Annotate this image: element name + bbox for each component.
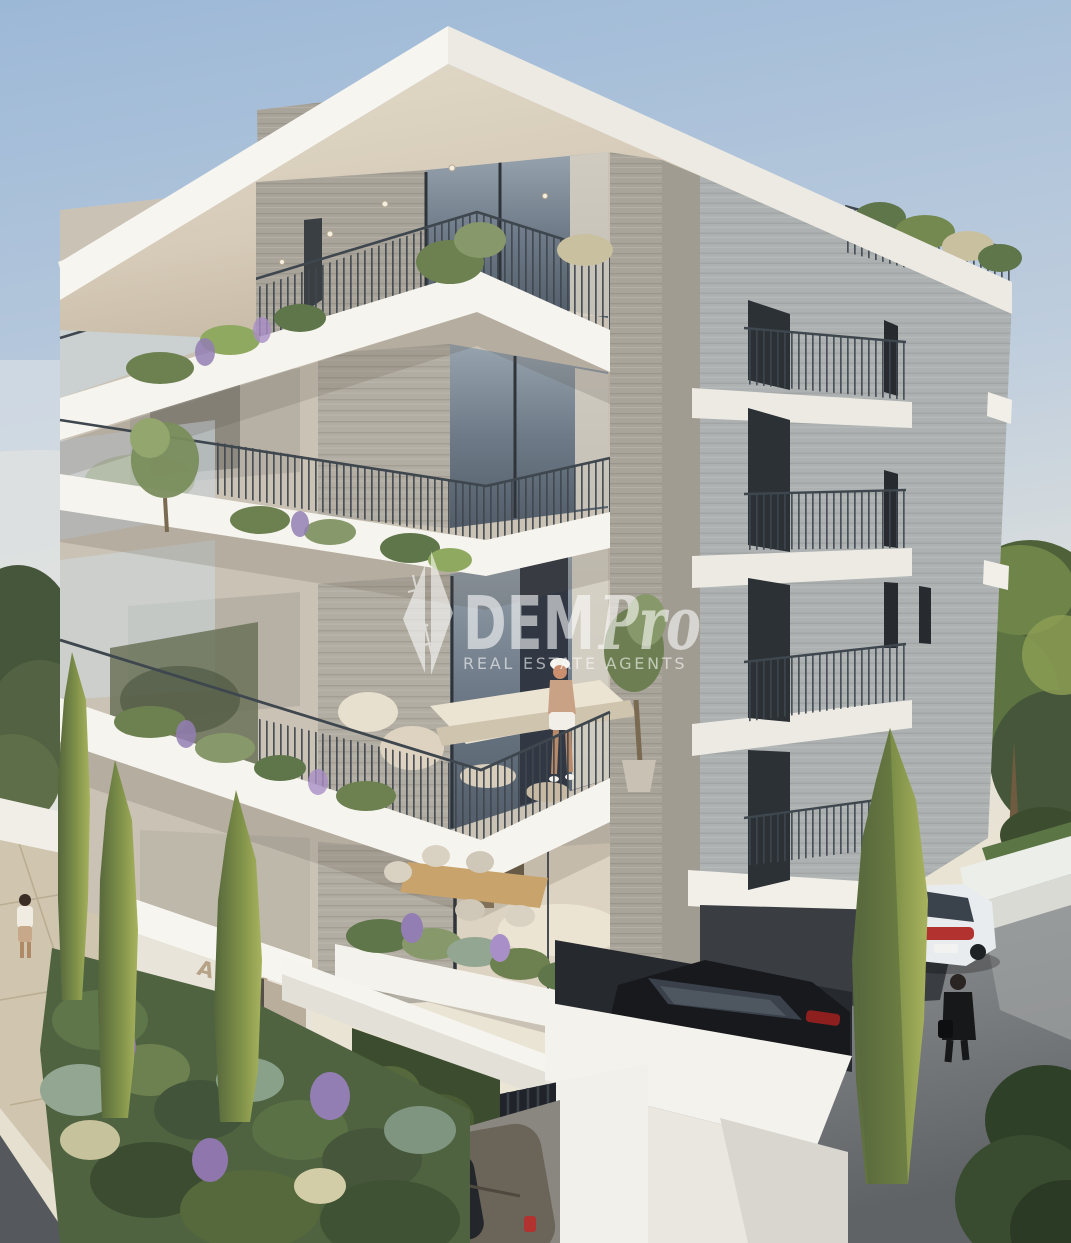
- chair: [422, 845, 450, 867]
- pale-grasses: [60, 1120, 120, 1160]
- agave: [384, 1106, 456, 1154]
- suv-taillight: [524, 1216, 536, 1232]
- armchair: [338, 692, 398, 732]
- render-canvas: ARIA: [0, 0, 1071, 1243]
- chair: [505, 905, 535, 927]
- wheel: [970, 944, 986, 960]
- chair: [466, 851, 494, 873]
- lavender-patch: [192, 1138, 228, 1182]
- lavender-patch: [310, 1072, 350, 1120]
- handbag: [938, 1020, 953, 1038]
- top: [17, 906, 33, 928]
- watermark-tagline: REAL ESTATE AGENTS: [463, 654, 691, 673]
- scene-svg: ARIA: [0, 0, 1071, 1243]
- head: [19, 894, 31, 906]
- chair: [384, 861, 412, 883]
- torso: [548, 680, 576, 714]
- license-plate: [934, 944, 958, 953]
- chair: [455, 899, 485, 921]
- skirt: [18, 926, 32, 942]
- head: [950, 974, 966, 990]
- shorts: [549, 712, 575, 730]
- pale-grasses: [294, 1168, 346, 1204]
- gate-pillar: [556, 1064, 648, 1243]
